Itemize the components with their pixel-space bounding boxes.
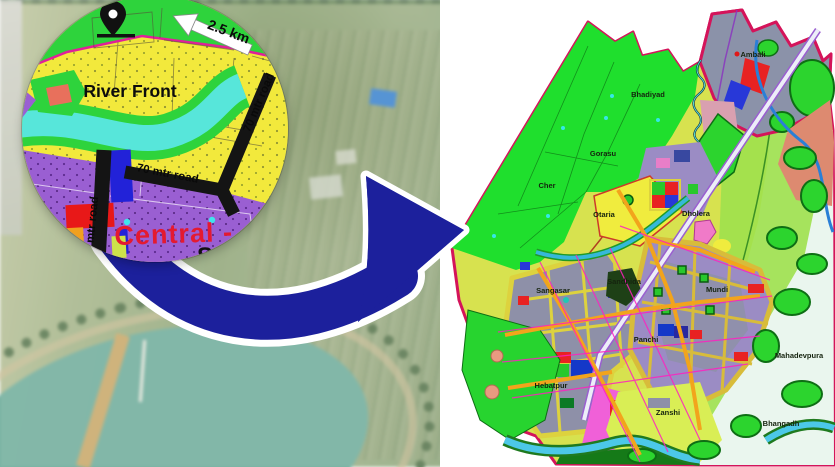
river-front-label: River Front [83, 81, 177, 101]
pin-underline [97, 34, 135, 38]
magnifier-circle-inset: 70 mtr road 70 mtr road 70 mtr road Rive… [22, 0, 288, 262]
dholera-map-collage: BhadiyadGorasuCherOtariaAmbaliDholeraSan… [0, 0, 835, 467]
inset-red-blob [46, 84, 72, 106]
central-label: Central - [114, 217, 234, 251]
